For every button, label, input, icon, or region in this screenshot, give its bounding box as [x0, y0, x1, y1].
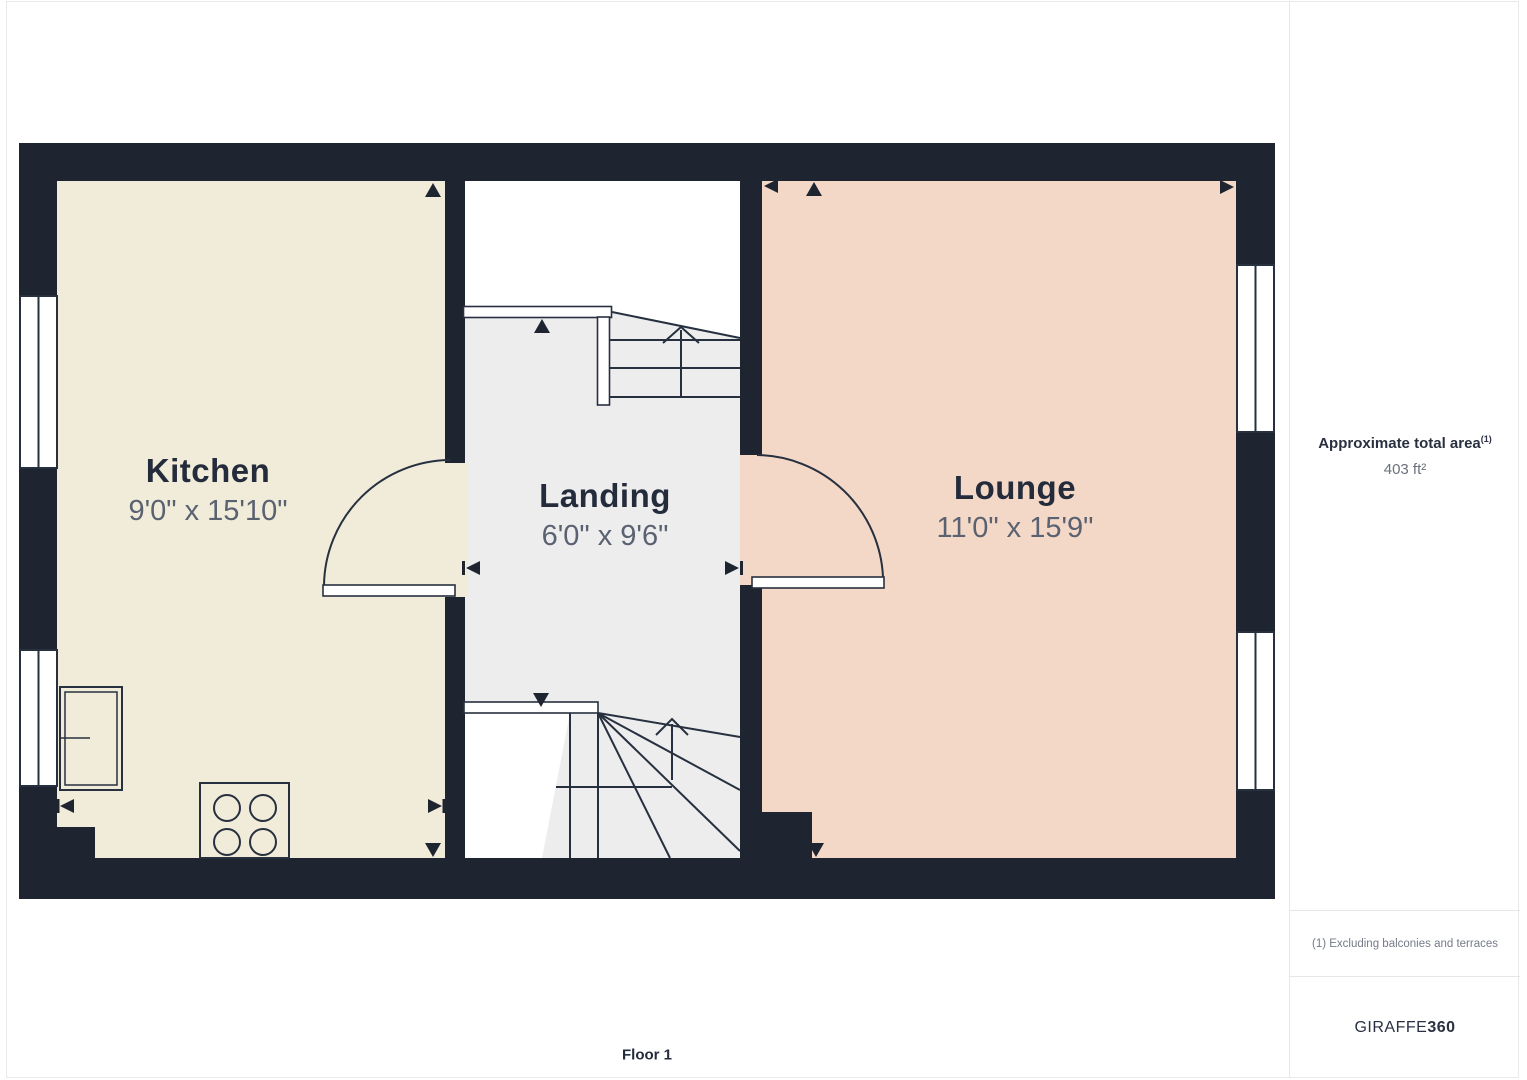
area-value: 403 ft²	[1384, 461, 1427, 478]
area-summary: Approximate total area(1) 403 ft²	[1290, 2, 1520, 910]
brand-logo: GIRAFFE360	[1290, 976, 1520, 1078]
room-label-lounge: Lounge 11'0" x 15'9"	[937, 467, 1094, 547]
room-name: Landing	[539, 475, 671, 517]
room-dimensions: 9'0" x 15'10"	[128, 492, 287, 530]
sidebar: Approximate total area(1) 403 ft² (1) Ex…	[1289, 2, 1520, 1078]
room-dimensions: 6'0" x 9'6"	[539, 517, 671, 555]
room-label-landing: Landing 6'0" x 9'6"	[539, 475, 671, 555]
room-name: Lounge	[937, 467, 1094, 509]
brand-logo-bold: 360	[1427, 1019, 1455, 1037]
window-right-lower	[1237, 632, 1274, 790]
room-name: Kitchen	[128, 450, 287, 492]
window-left-lower	[20, 650, 57, 786]
stove-icon	[200, 783, 289, 858]
kitchen-door-opening	[445, 463, 468, 597]
room-dimensions: 11'0" x 15'9"	[937, 509, 1094, 547]
area-title-text: Approximate total area	[1318, 435, 1481, 452]
area-footnote-ref: (1)	[1481, 434, 1492, 444]
brand-logo-regular: GIRAFFE	[1354, 1019, 1427, 1037]
floorplan-page: Kitchen 9'0" x 15'10" Landing 6'0" x 9'6…	[0, 0, 1527, 1080]
lounge-door-opening	[740, 455, 762, 585]
footnote: (1) Excluding balconies and terraces	[1290, 910, 1520, 976]
window-left-upper	[20, 296, 57, 468]
floor-label: Floor 1	[622, 1047, 672, 1064]
area-title: Approximate total area(1)	[1318, 434, 1492, 452]
room-label-kitchen: Kitchen 9'0" x 15'10"	[128, 450, 287, 530]
window-right-upper	[1237, 265, 1274, 432]
sink-unit-icon	[60, 687, 122, 790]
